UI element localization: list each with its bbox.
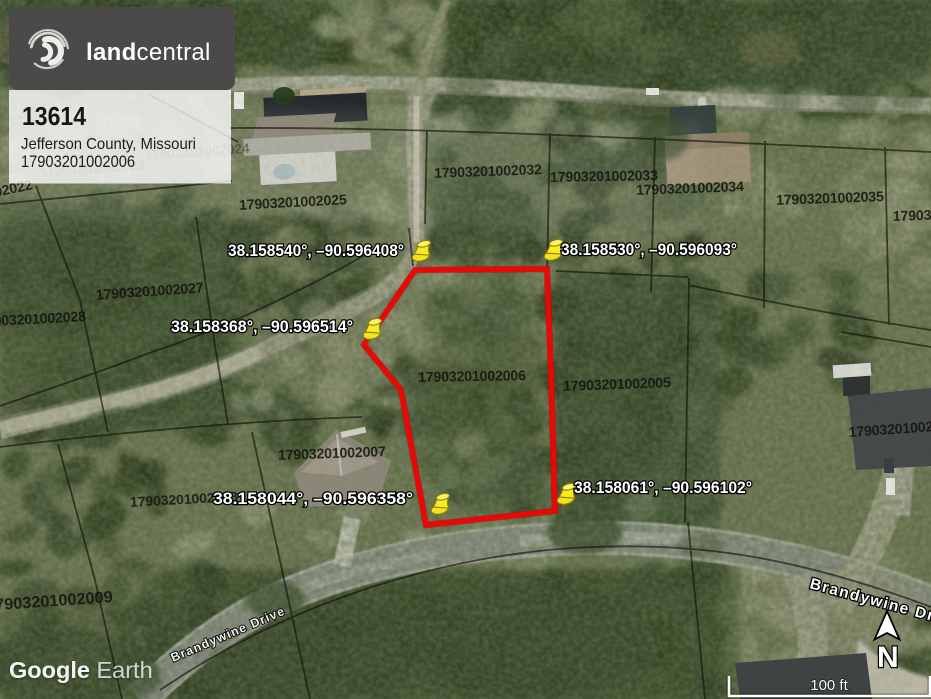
svg-text:38.158368°, –90.596514°: 38.158368°, –90.596514°: [171, 317, 353, 336]
svg-text:1790320: 1790320: [893, 207, 931, 225]
svg-text:100 ft: 100 ft: [810, 677, 848, 694]
svg-text:13614: 13614: [22, 103, 87, 131]
svg-text:Google Earth: Google Earth: [9, 657, 153, 683]
svg-text:N: N: [877, 641, 899, 674]
svg-text:landcentral: landcentral: [86, 39, 211, 66]
svg-text:38.158044°, –90.596358°: 38.158044°, –90.596358°: [213, 489, 413, 508]
svg-text:17903201002006: 17903201002006: [418, 368, 526, 386]
svg-text:38.158540°, –90.596408°: 38.158540°, –90.596408°: [228, 241, 404, 260]
svg-text:38.158530°, –90.596093°: 38.158530°, –90.596093°: [561, 240, 737, 259]
svg-text:38.158061°, –90.596102°: 38.158061°, –90.596102°: [574, 478, 752, 497]
svg-text:Jefferson County, Missouri: Jefferson County, Missouri: [21, 136, 196, 153]
svg-text:17903201002006: 17903201002006: [21, 152, 135, 171]
